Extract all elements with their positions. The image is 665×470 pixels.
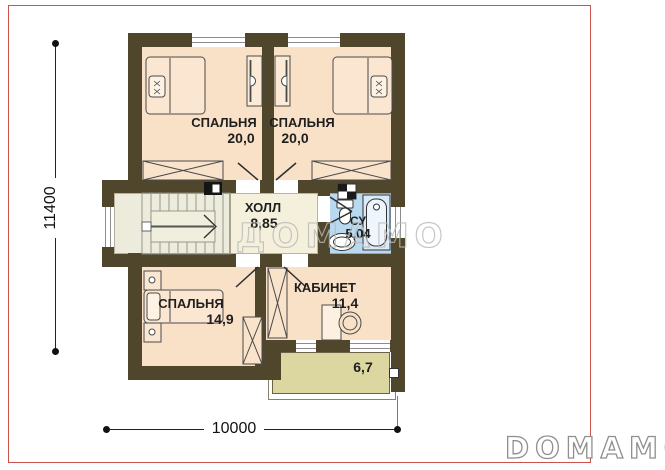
office-label: КАБИНЕТ (275, 281, 375, 294)
bedroom1-floor (135, 40, 268, 186)
wall-bedrooms-divider (262, 33, 274, 193)
window-bedroom2 (288, 33, 340, 47)
door-opening-bedroom3 (236, 254, 260, 267)
brand-logo: DOMAMO (505, 431, 665, 465)
window-office-1 (296, 340, 316, 352)
window-bedroom1 (192, 33, 245, 47)
bedroom2-label: СПАЛЬНЯ (252, 116, 352, 129)
dim-dot-right (394, 426, 401, 433)
door-opening-office (282, 254, 308, 267)
dim-leader-right (397, 396, 398, 427)
hall-label: ХОЛЛ (213, 201, 313, 214)
door-opening-bedroom1 (236, 180, 260, 193)
center-watermark: ДОМАМО (236, 216, 466, 255)
window-stairwell (102, 207, 114, 247)
dim-height-label: 11400 (43, 178, 61, 238)
bedroom2-area: 20,0 (245, 131, 345, 145)
wall-left-lower (128, 253, 142, 380)
floor-plan-canvas: СПАЛЬНЯ 20,0 СПАЛЬНЯ 20,0 ХОЛЛ 8,85 СУ 5… (0, 0, 665, 470)
office-area: 11,4 (295, 296, 395, 310)
wall-b-left (128, 254, 236, 267)
dim-dot-left (103, 426, 110, 433)
dim-dot-top (52, 40, 59, 47)
wall-left-upper (128, 33, 142, 183)
wall-bath-left-upper (318, 180, 330, 196)
dim-width-label: 10000 (204, 421, 264, 437)
wall-a-right (298, 180, 405, 193)
bedroom3-area: 14,9 (170, 312, 270, 326)
wall-a-left (128, 180, 236, 193)
bedroom2-floor (268, 40, 398, 186)
door-opening-bedroom2 (274, 180, 298, 193)
wall-balcony-left (266, 340, 281, 380)
window-office-2 (350, 340, 390, 352)
dim-dot-bottom (52, 348, 59, 355)
bedroom3-label: СПАЛЬНЯ (141, 297, 241, 310)
balcony-area: 6,7 (313, 360, 413, 374)
